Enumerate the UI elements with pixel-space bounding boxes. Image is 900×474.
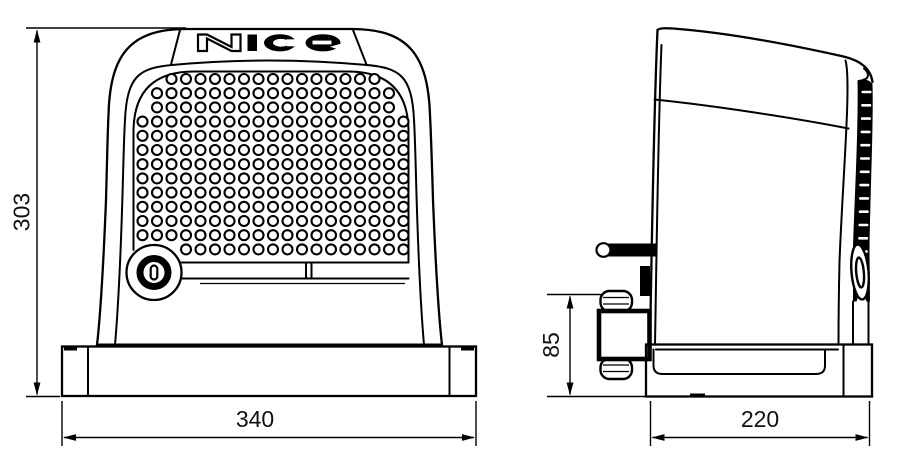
grille-hole (239, 145, 249, 155)
grille-hole (152, 145, 162, 155)
bracket-block (599, 311, 650, 359)
grille-hole (326, 131, 336, 141)
grille-hole (268, 145, 278, 155)
grille-hole (399, 216, 409, 226)
grille-hole (341, 188, 351, 198)
grille-hole (355, 117, 365, 127)
grille-hole (384, 88, 394, 98)
grille-hole (210, 102, 220, 112)
grille-hole (196, 145, 206, 155)
grille-hole (384, 244, 394, 254)
grille-hole (181, 131, 191, 141)
grille-hole (254, 102, 264, 112)
grille-hole (239, 244, 249, 254)
grille-hole (196, 159, 206, 169)
grille-hole (210, 173, 220, 183)
grille-hole (152, 102, 162, 112)
grille-hole (370, 173, 380, 183)
grille-hole (384, 230, 394, 240)
grille-hole (196, 173, 206, 183)
grille-hole (181, 230, 191, 240)
grille-hole (326, 117, 336, 127)
grille-hole (326, 173, 336, 183)
grille-hole (297, 216, 307, 226)
grille-hole (254, 88, 264, 98)
grille-hole (312, 216, 322, 226)
grille-hole (239, 188, 249, 198)
grille-hole (297, 202, 307, 212)
grille-hole (138, 230, 148, 240)
grille-hole (355, 244, 365, 254)
grille-hole (254, 202, 264, 212)
rib-dash (862, 91, 872, 94)
grille-hole (254, 74, 264, 84)
grille-hole (312, 173, 322, 183)
nice-logo (198, 34, 341, 51)
keyhole-icon (151, 266, 158, 280)
grille-hole (355, 145, 365, 155)
grille-hole (399, 202, 409, 212)
grille-hole (239, 88, 249, 98)
rib-dash (860, 171, 870, 174)
grille-hole (167, 216, 177, 226)
grille-hole (225, 188, 235, 198)
grille-hole (254, 145, 264, 155)
grille-hole (167, 117, 177, 127)
grille-hole (225, 173, 235, 183)
grille-hole (370, 131, 380, 141)
grille-hole (355, 188, 365, 198)
rib-dash (859, 197, 869, 200)
release-rod-cap (597, 243, 611, 257)
grille-hole (384, 202, 394, 212)
logo-letter-c-opening (287, 39, 299, 46)
grille-hole (239, 117, 249, 127)
grille-hole (399, 131, 409, 141)
grille-hole (355, 216, 365, 226)
grille-hole (152, 216, 162, 226)
dim-depth: 220 (651, 401, 870, 446)
grille-hole (312, 74, 322, 84)
grille-hole (399, 173, 409, 183)
grille-hole (225, 102, 235, 112)
logo-letter-n (198, 35, 241, 52)
grille-hole (152, 88, 162, 98)
grille-hole (225, 159, 235, 169)
grille-hole (370, 202, 380, 212)
grille-hole (283, 145, 293, 155)
grille-hole (384, 131, 394, 141)
grille-hole (399, 145, 409, 155)
rib-dash (858, 237, 868, 240)
grille-hole (210, 145, 220, 155)
dim-depth-arrow-right (856, 434, 869, 441)
grille-hole (239, 230, 249, 240)
grille-hole (341, 202, 351, 212)
grille-hole (341, 131, 351, 141)
grille-hole (326, 244, 336, 254)
grille-hole (341, 173, 351, 183)
grille-hole (138, 159, 148, 169)
handle-strip-divider (306, 263, 312, 279)
grille-hole (225, 131, 235, 141)
grille-hole (355, 102, 365, 112)
grille-hole (384, 159, 394, 169)
grille-hole (399, 159, 409, 169)
bracket-mount-bar (640, 266, 650, 296)
grille-hole (167, 145, 177, 155)
grille-hole (326, 188, 336, 198)
grille-hole (239, 102, 249, 112)
grille-hole (225, 74, 235, 84)
rib-dash (859, 210, 869, 213)
grille-hole (312, 188, 322, 198)
grille-hole (268, 216, 278, 226)
grille-hole (181, 159, 191, 169)
grille-hole (384, 216, 394, 226)
grille-hole (370, 188, 380, 198)
grille-hole (297, 173, 307, 183)
grille-hole (326, 159, 336, 169)
rib-dash (859, 184, 869, 187)
dim-height-arrow-top (34, 30, 41, 43)
grille-hole (268, 88, 278, 98)
grille-hole (326, 145, 336, 155)
grille-hole (312, 230, 322, 240)
grille-hole (297, 102, 307, 112)
rib-dash (858, 224, 868, 227)
grille-hole (297, 145, 307, 155)
grille-hole (239, 173, 249, 183)
rib-dash (861, 131, 871, 134)
grille-hole (138, 216, 148, 226)
logo-band-right-edge (353, 30, 367, 65)
grille-hole (341, 230, 351, 240)
grille-hole (370, 145, 380, 155)
dim-bracket-value: 85 (538, 332, 564, 358)
grille-hole (399, 244, 409, 254)
grille-hole (167, 131, 177, 141)
grille-hole (384, 117, 394, 127)
grille-hole (210, 202, 220, 212)
grille-hole (341, 117, 351, 127)
grille-hole (297, 188, 307, 198)
grille-hole (297, 131, 307, 141)
grille-hole (312, 88, 322, 98)
base-corner-mark-right (461, 348, 474, 351)
rib-dash (861, 117, 871, 120)
grille-hole (370, 88, 380, 98)
grille-hole (167, 230, 177, 240)
grille-hole (210, 216, 220, 226)
grille-hole (152, 131, 162, 141)
grille-hole (355, 173, 365, 183)
grille-hole (312, 131, 322, 141)
grille-hole (326, 202, 336, 212)
pinion-bracket (599, 291, 650, 379)
grille-hole (268, 244, 278, 254)
grille-hole (326, 88, 336, 98)
grille-hole (384, 102, 394, 112)
grille-hole (225, 216, 235, 226)
dim-bracket-arrow-top (567, 296, 574, 309)
grille-hole (341, 88, 351, 98)
bracket-bottom-tab (601, 359, 633, 380)
grille-hole (239, 216, 249, 226)
grille-hole (167, 173, 177, 183)
grille-hole (181, 74, 191, 84)
base-corner-mark-left (64, 348, 77, 351)
grille-hole (268, 202, 278, 212)
grille-hole (297, 159, 307, 169)
grille-hole (268, 74, 278, 84)
grille-hole (268, 131, 278, 141)
grille-hole (399, 117, 409, 127)
grille-hole (239, 74, 249, 84)
grille-hole (312, 117, 322, 127)
grille-hole (181, 202, 191, 212)
grille-hole (254, 117, 264, 127)
grille-hole (312, 244, 322, 254)
grille-hole (254, 131, 264, 141)
grille-hole (312, 102, 322, 112)
grille-hole (181, 117, 191, 127)
technical-drawing: 303 340 85 220 (0, 0, 900, 474)
grille-hole (210, 88, 220, 98)
dim-width-arrow-right (462, 434, 475, 441)
grille-hole (355, 131, 365, 141)
grille-hole (399, 188, 409, 198)
rib-dash (860, 157, 870, 160)
grille-hole (341, 145, 351, 155)
grille-hole (152, 230, 162, 240)
grille-hole (283, 244, 293, 254)
grille-hole (167, 159, 177, 169)
grille-hole (167, 102, 177, 112)
grille-hole (370, 102, 380, 112)
grille-holes (138, 74, 409, 254)
grille-hole (355, 74, 365, 84)
grille-hole (283, 216, 293, 226)
grille-hole (370, 244, 380, 254)
grille-hole (355, 202, 365, 212)
dim-width-value: 340 (236, 406, 274, 432)
grille-hole (138, 131, 148, 141)
grille-hole (283, 74, 293, 84)
grille-hole (181, 216, 191, 226)
key-lock (127, 245, 182, 300)
grille-hole (326, 230, 336, 240)
grille-hole (326, 102, 336, 112)
grille-hole (152, 202, 162, 212)
grille-hole (341, 102, 351, 112)
grille-hole (167, 88, 177, 98)
grille-hole (283, 202, 293, 212)
grille-hole (152, 117, 162, 127)
grille-hole (181, 102, 191, 112)
grille-hole (326, 74, 336, 84)
grille-hole (399, 230, 409, 240)
front-view (62, 29, 476, 396)
grille-hole (196, 131, 206, 141)
grille-hole (268, 173, 278, 183)
grille-hole (297, 74, 307, 84)
grille-hole (297, 230, 307, 240)
grille-hole (283, 131, 293, 141)
grille-hole (138, 202, 148, 212)
grille-hole (196, 88, 206, 98)
grille-hole (312, 145, 322, 155)
dim-depth-value: 220 (741, 406, 779, 432)
grille-hole (355, 159, 365, 169)
grille-hole (239, 202, 249, 212)
grille-hole (196, 230, 206, 240)
grille-hole (225, 145, 235, 155)
grille-hole (138, 188, 148, 198)
logo-letter-e-bar (313, 41, 332, 45)
grille-hole (167, 74, 177, 84)
grille-hole (384, 188, 394, 198)
grille-hole (239, 131, 249, 141)
grille-hole (268, 102, 278, 112)
grille-hole (355, 230, 365, 240)
grille-hole (181, 244, 191, 254)
grille-hole (225, 244, 235, 254)
grille-hole (283, 117, 293, 127)
grille-hole (283, 102, 293, 112)
grille-hole (312, 159, 322, 169)
grille-hole (196, 74, 206, 84)
grille-hole (152, 159, 162, 169)
grille-hole (138, 173, 148, 183)
grille-hole (384, 173, 394, 183)
grille-hole (210, 117, 220, 127)
grille-hole (210, 188, 220, 198)
grille-hole (370, 159, 380, 169)
grille-hole (268, 230, 278, 240)
grille-hole (297, 88, 307, 98)
base-plate (62, 347, 476, 397)
grille-hole (196, 216, 206, 226)
dim-height-value: 303 (9, 193, 35, 231)
grille-hole (225, 88, 235, 98)
dim-depth-arrow-left (652, 434, 665, 441)
grille-hole (283, 188, 293, 198)
grille-hole (384, 145, 394, 155)
grille-hole (152, 188, 162, 198)
grille-hole (210, 131, 220, 141)
grille-hole (254, 188, 264, 198)
grille-hole (181, 145, 191, 155)
grille-hole (167, 202, 177, 212)
drawing-svg: 303 340 85 220 (0, 0, 900, 474)
grille-hole (341, 244, 351, 254)
logo-letter-i (248, 35, 258, 52)
grille-hole (196, 117, 206, 127)
grille-hole (152, 173, 162, 183)
grille-hole (254, 173, 264, 183)
rib-dash (861, 104, 871, 107)
grille-hole (283, 173, 293, 183)
grille-hole (312, 202, 322, 212)
grille-hole (138, 117, 148, 127)
dim-width: 340 (62, 401, 476, 446)
side-view (597, 28, 873, 396)
grille-hole (210, 159, 220, 169)
grille-hole (254, 244, 264, 254)
grille-hole (355, 88, 365, 98)
grille-hole (196, 202, 206, 212)
grille-hole (341, 216, 351, 226)
grille-hole (341, 74, 351, 84)
rib-strip-lower-lines (853, 302, 869, 345)
grille-hole (210, 230, 220, 240)
grille-hole (225, 230, 235, 240)
grille-hole (181, 88, 191, 98)
side-top-edge (658, 28, 844, 56)
grille-hole (268, 188, 278, 198)
grille-hole (326, 216, 336, 226)
dim-bracket-arrow-bottom (567, 383, 574, 396)
grille-hole (181, 188, 191, 198)
bracket-top-tab (601, 291, 633, 312)
grille-hole (210, 244, 220, 254)
side-base-bottom-mark (690, 394, 705, 397)
grille-hole (268, 159, 278, 169)
grille-hole (225, 202, 235, 212)
grille-hole (196, 188, 206, 198)
grille-hole (370, 117, 380, 127)
grille-hole (196, 244, 206, 254)
grille-hole (341, 159, 351, 169)
grille-hole (210, 74, 220, 84)
dim-width-arrow-left (63, 434, 76, 441)
grille-hole (254, 230, 264, 240)
grille-hole (254, 159, 264, 169)
rib-dash (860, 144, 870, 147)
grille-hole (181, 173, 191, 183)
grille-hole (239, 159, 249, 169)
dim-height-arrow-bottom (34, 383, 41, 396)
side-cover-seam-line (655, 100, 849, 129)
grille-hole (297, 244, 307, 254)
grille-hole (370, 74, 380, 84)
grille-hole (167, 188, 177, 198)
grille-hole (297, 117, 307, 127)
grille-hole (370, 230, 380, 240)
grille-hole (268, 117, 278, 127)
grille-hole (196, 102, 206, 112)
grille-hole (370, 216, 380, 226)
grille-hole (254, 216, 264, 226)
grille-hole (283, 88, 293, 98)
grille-hole (283, 230, 293, 240)
grille-hole (283, 159, 293, 169)
side-base-plate (646, 345, 872, 397)
logo-band-left-edge (171, 30, 180, 65)
grille-hole (225, 117, 235, 127)
side-right-edge-inner (839, 61, 848, 346)
grille-hole (138, 145, 148, 155)
